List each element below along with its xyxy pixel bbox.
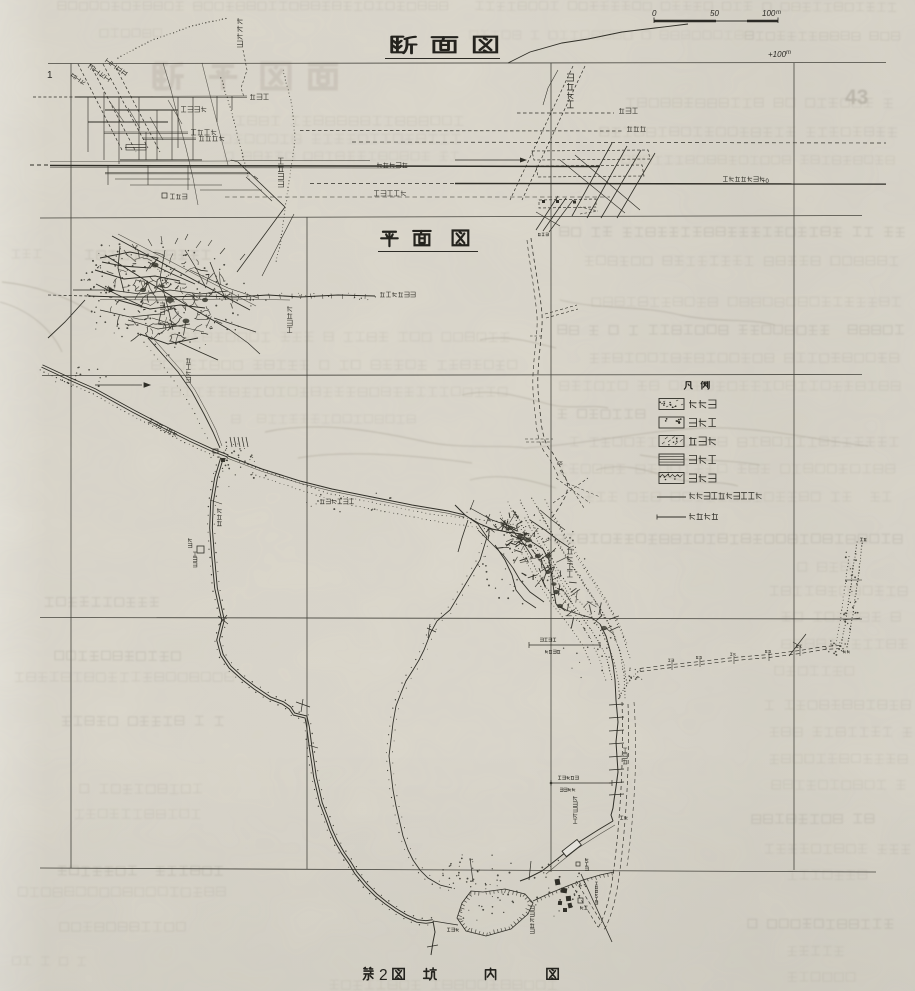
svg-text:0: 0 [652,9,657,18]
svg-text:+0: +0 [762,179,770,185]
svg-text:50: 50 [710,9,719,18]
svg-text:2: 2 [379,967,388,984]
svg-text:65: 65 [557,461,563,467]
svg-text:100: 100 [762,9,776,18]
svg-text:m: m [776,10,781,16]
svg-text:43: 43 [845,86,868,109]
svg-text:+100: +100 [768,50,787,59]
svg-text:m: m [786,50,791,56]
svg-text:1: 1 [47,70,53,81]
